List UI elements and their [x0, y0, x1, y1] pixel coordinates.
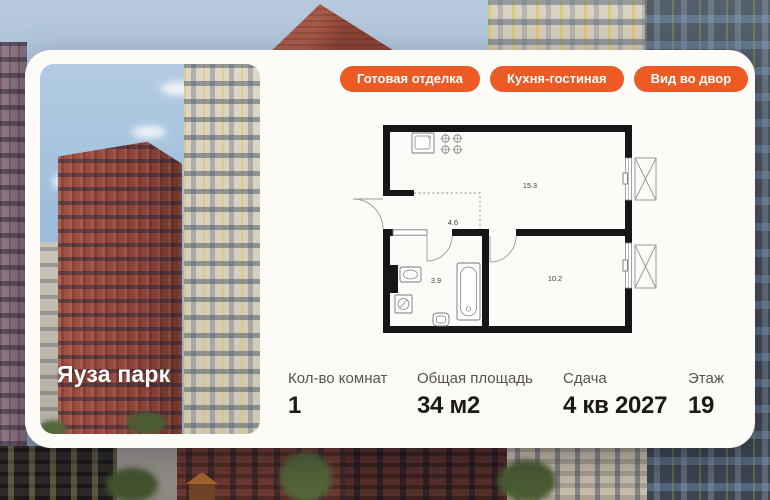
- stat-rooms-label: Кол-во комнат: [288, 370, 387, 387]
- plan-walls: [383, 125, 632, 333]
- photo-cream-building: [184, 64, 260, 434]
- stat-area-value: 34 м2: [417, 392, 533, 420]
- photo-tree: [40, 420, 66, 434]
- background-building-dark: [0, 446, 117, 500]
- background-red-tower-apex: [262, 0, 400, 52]
- stat-area: Общая площадь 34 м2: [417, 370, 533, 420]
- screenshot-root: Яуза парк Готовая отделка Кухня-гостиная…: [0, 0, 770, 500]
- stat-completion-label: Сдача: [563, 370, 667, 387]
- plan-doors: [353, 199, 516, 262]
- project-name-label: Яуза парк: [57, 361, 170, 388]
- badge-kitchen-living[interactable]: Кухня-гостиная: [490, 66, 624, 92]
- stat-floor-value: 19: [688, 392, 724, 420]
- bathtub-icon: [457, 263, 480, 320]
- toilet-icon: [433, 313, 449, 326]
- badge-finishing[interactable]: Готовая отделка: [340, 66, 480, 92]
- tree: [498, 460, 556, 500]
- background-left-tower: [0, 42, 27, 500]
- plan-partition: [393, 230, 427, 235]
- cloud: [132, 126, 166, 138]
- badge-courtyard-view[interactable]: Вид во двор: [634, 66, 749, 92]
- feature-badges: Готовая отделка Кухня-гостиная Вид во дв…: [340, 66, 748, 92]
- tree: [280, 452, 332, 500]
- stat-completion: Сдача 4 кв 2027: [563, 370, 667, 420]
- plan-balconies: [635, 158, 656, 288]
- room-area-bedroom: 10.2: [548, 274, 562, 283]
- background-building-maroon: [345, 446, 507, 500]
- stat-area-label: Общая площадь: [417, 370, 533, 387]
- kitchen-sink-icon: [412, 133, 434, 153]
- stat-rooms: Кол-во комнат 1: [288, 370, 387, 420]
- listing-card[interactable]: Яуза парк Готовая отделка Кухня-гостиная…: [25, 50, 755, 448]
- stat-rooms-value: 1: [288, 392, 387, 420]
- washing-machine-icon: [395, 295, 412, 313]
- room-area-kitchen-living: 15.3: [523, 181, 537, 190]
- stove-icon: [441, 134, 463, 155]
- stat-completion-value: 4 кв 2027: [563, 392, 667, 420]
- room-area-hallway: 4.6: [448, 218, 458, 227]
- bath-sink-icon: [400, 267, 421, 282]
- project-photo[interactable]: Яуза парк: [40, 64, 260, 434]
- photo-tree: [126, 412, 166, 434]
- room-area-bathroom: 3.9: [431, 276, 441, 285]
- playground-house: [189, 484, 215, 500]
- stat-floor: Этаж 19: [688, 370, 724, 420]
- tree: [106, 468, 158, 500]
- background-cream-building: [488, 0, 648, 52]
- stat-floor-label: Этаж: [688, 370, 724, 387]
- floor-plan: 15.3 4.6 3.9 10.2: [343, 125, 663, 335]
